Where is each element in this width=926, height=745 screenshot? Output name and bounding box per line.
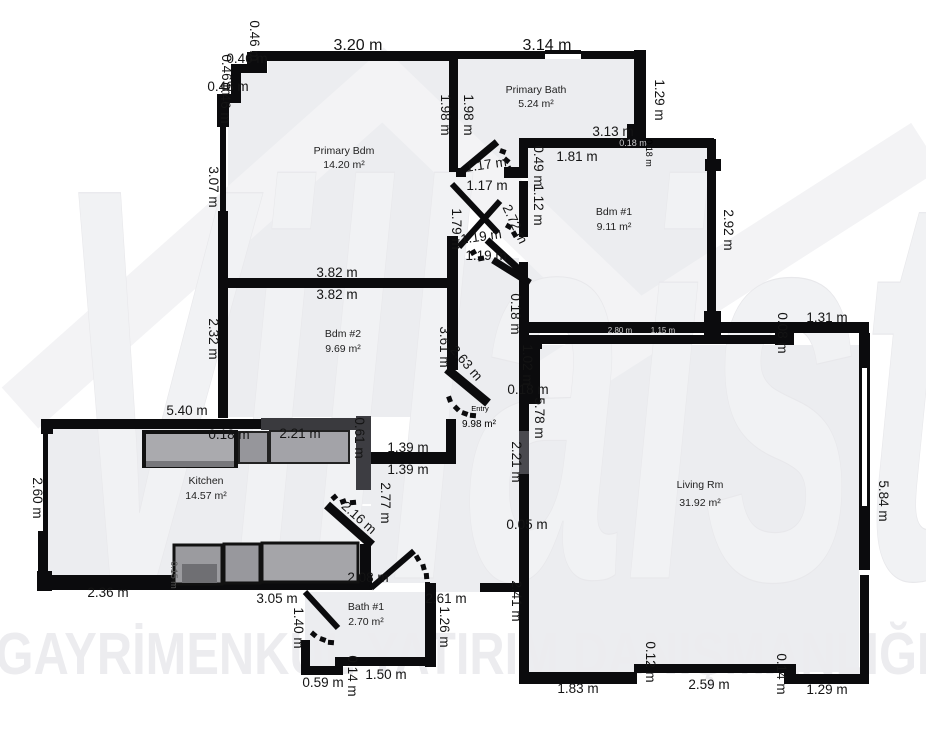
- svg-text:3.13 m: 3.13 m: [592, 124, 633, 139]
- svg-text:Primary Bath: Primary Bath: [506, 84, 567, 96]
- svg-text:3.82 m: 3.82 m: [316, 287, 357, 302]
- svg-text:1.26 m: 1.26 m: [437, 606, 452, 647]
- svg-text:0.14 m: 0.14 m: [345, 655, 360, 696]
- svg-text:0.18 m: 0.18 m: [208, 427, 249, 442]
- svg-text:0.12 m: 0.12 m: [643, 641, 658, 682]
- svg-text:2.21 m: 2.21 m: [279, 426, 320, 441]
- svg-text:1.83 m: 1.83 m: [557, 681, 598, 696]
- svg-text:5.24 m²: 5.24 m²: [518, 98, 554, 110]
- svg-text:2.32 m: 2.32 m: [206, 318, 221, 359]
- svg-text:Bdm #1: Bdm #1: [596, 206, 632, 218]
- svg-text:1.98 m: 1.98 m: [438, 94, 453, 135]
- svg-text:5.40 m: 5.40 m: [166, 403, 207, 418]
- svg-text:2.21 m: 2.21 m: [509, 441, 524, 482]
- svg-text:Primary Bdm: Primary Bdm: [314, 145, 375, 157]
- svg-text:0.08 m: 0.08 m: [775, 312, 790, 353]
- svg-text:2.36 m: 2.36 m: [87, 585, 128, 600]
- svg-text:1.29 m: 1.29 m: [652, 79, 667, 120]
- svg-text:9.69 m²: 9.69 m²: [325, 343, 361, 355]
- svg-text:9.98 m²: 9.98 m²: [462, 419, 497, 430]
- svg-text:1.50 m: 1.50 m: [365, 667, 406, 682]
- svg-text:3.82 m: 3.82 m: [316, 265, 357, 280]
- svg-text:Entry: Entry: [471, 404, 489, 413]
- svg-text:2.80 m: 2.80 m: [608, 326, 633, 335]
- svg-text:5.78 m: 5.78 m: [532, 397, 547, 438]
- svg-text:1.31 m: 1.31 m: [806, 310, 847, 325]
- svg-text:3.20 m: 3.20 m: [334, 37, 383, 54]
- svg-text:2.92 m: 2.92 m: [721, 209, 736, 250]
- svg-text:2.59 m: 2.59 m: [688, 677, 729, 692]
- svg-text:1.12 m: 1.12 m: [531, 184, 546, 225]
- svg-text:1.19 m: 1.19 m: [465, 248, 506, 263]
- svg-text:0.18 m: 0.18 m: [619, 138, 647, 148]
- svg-text:2.08 m: 2.08 m: [347, 570, 388, 585]
- svg-text:1.29 m: 1.29 m: [806, 682, 847, 697]
- svg-text:1.81 m: 1.81 m: [556, 149, 597, 164]
- svg-text:3.07 m: 3.07 m: [206, 166, 221, 207]
- svg-text:3.05 m: 3.05 m: [256, 591, 297, 606]
- svg-text:2.41 m: 2.41 m: [509, 580, 524, 621]
- svg-text:1.15 m: 1.15 m: [651, 326, 676, 335]
- svg-text:2.61 m: 2.61 m: [425, 591, 466, 606]
- svg-text:14.20 m²: 14.20 m²: [323, 159, 365, 171]
- svg-text:3.61 m: 3.61 m: [437, 326, 452, 367]
- svg-text:Bath #1: Bath #1: [348, 601, 384, 613]
- svg-text:1.17 m: 1.17 m: [466, 178, 507, 193]
- svg-text:31.92 m²: 31.92 m²: [679, 497, 721, 509]
- svg-text:1.39 m: 1.39 m: [387, 462, 428, 477]
- svg-text:2.77 m: 2.77 m: [378, 482, 393, 523]
- svg-text:0.59 m: 0.59 m: [302, 675, 343, 690]
- svg-text:0.05 m: 0.05 m: [506, 517, 547, 532]
- svg-text:0.46 m: 0.46 m: [218, 82, 233, 123]
- svg-text:0.18 m: 0.18 m: [507, 382, 548, 397]
- svg-text:0.61 m: 0.61 m: [352, 417, 367, 458]
- svg-text:14.57 m²: 14.57 m²: [185, 490, 227, 502]
- svg-text:1.40 m: 1.40 m: [291, 607, 306, 648]
- svg-text:0.49 m: 0.49 m: [531, 145, 546, 186]
- svg-text:1.98 m: 1.98 m: [461, 94, 476, 135]
- svg-text:Bdm #2: Bdm #2: [325, 328, 361, 340]
- svg-text:0.18 m: 0.18 m: [644, 139, 654, 167]
- svg-text:0.14 m: 0.14 m: [774, 653, 789, 694]
- svg-text:Living Rm: Living Rm: [677, 479, 724, 491]
- svg-text:Kitchen: Kitchen: [188, 475, 223, 487]
- svg-text:1.02 m: 1.02 m: [520, 344, 535, 385]
- svg-text:0.15 m: 0.15 m: [169, 561, 179, 589]
- svg-text:9.11 m²: 9.11 m²: [597, 221, 632, 233]
- svg-text:5.84 m: 5.84 m: [876, 480, 891, 521]
- svg-text:1.39 m: 1.39 m: [387, 440, 428, 455]
- svg-text:2.70 m²: 2.70 m²: [348, 616, 384, 628]
- svg-text:2.60 m: 2.60 m: [30, 477, 45, 518]
- svg-text:0.18 m: 0.18 m: [508, 293, 523, 334]
- svg-text:3.14 m: 3.14 m: [523, 37, 572, 54]
